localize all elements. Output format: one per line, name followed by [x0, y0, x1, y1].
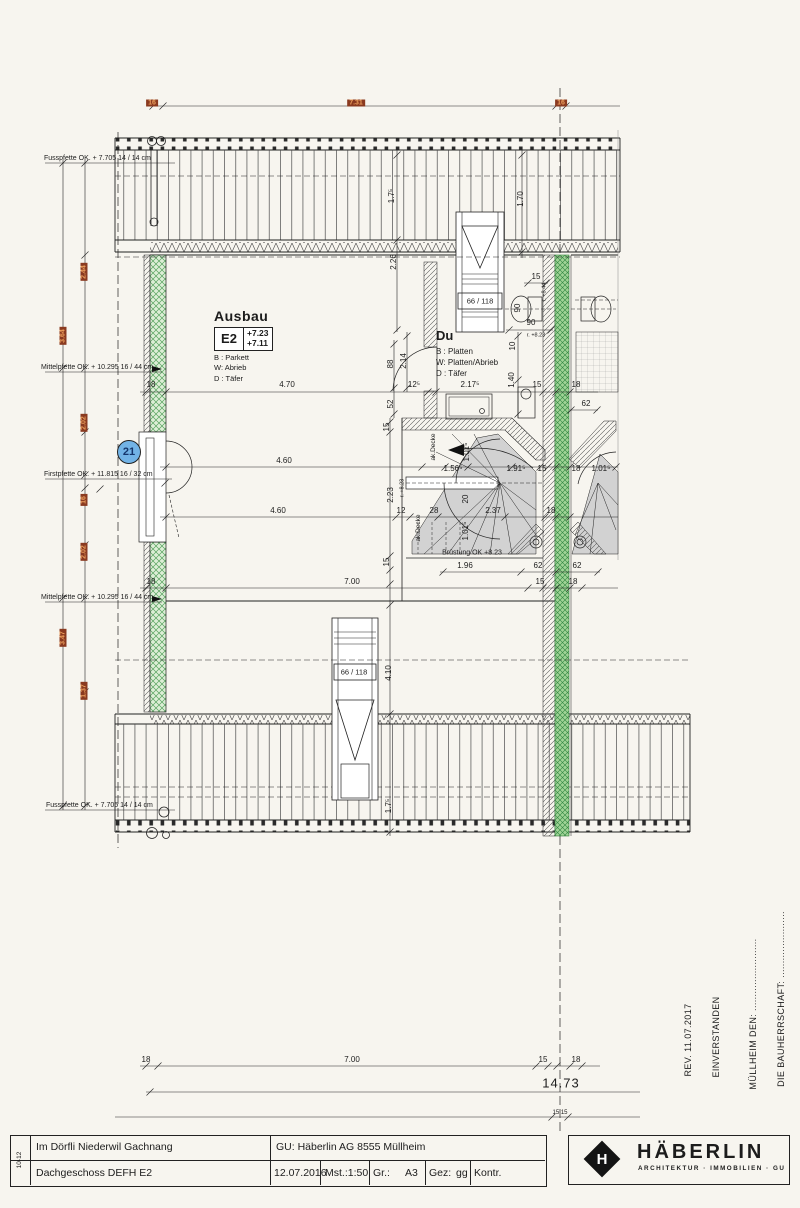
dim-470: 4.70 [279, 381, 295, 389]
label-fusspfette-bottom: Fusspfette OK. + 7.705 14 / 14 cm [46, 802, 153, 809]
unit-levels: +7.23 +7.11 [244, 328, 272, 350]
dim-101-c: 1.01⁵ [462, 522, 470, 541]
floor-plan-drawing [0, 0, 800, 1208]
title-block-divider-2 [270, 1135, 271, 1185]
dim-bottom-18b: 18 [572, 1056, 581, 1064]
dim-101-b: 1.01⁵ [592, 465, 611, 473]
skylight-top-label: 66 / 118 [467, 297, 494, 305]
bath-finish-ceiling: D : Täfer [436, 368, 498, 379]
shower [446, 394, 492, 419]
dim-red-347: 3.47 [60, 629, 67, 647]
facade-window [139, 432, 192, 542]
room-finishes: B : Parkett W: Abrieb D : Täfer [214, 353, 273, 386]
dim-18-du: 18 [572, 381, 581, 389]
dim-18-wall: 18 [547, 507, 556, 515]
dim-bottom-15: 15 [539, 1056, 548, 1064]
dim-226: 2.26 [390, 254, 398, 270]
sheet-index: 10-12 [17, 1152, 24, 1169]
dim-20: 20 [462, 495, 470, 504]
dim-88: 88 [387, 360, 395, 369]
dim-214: 2.14 [400, 353, 408, 369]
bath-title: Du [436, 328, 498, 343]
dim-237: 2.37 [485, 507, 501, 515]
label-mittelpfette-bottom: Mittelpfette OK. + 10.295 16 / 44 cm [41, 594, 153, 601]
dim-red-202b: 2.02 [81, 543, 88, 561]
dim-15-stair: 15 [538, 465, 547, 473]
dim-170: 1.70 [517, 191, 525, 207]
dim-62-b: 62 [573, 562, 582, 570]
dim-red-137: 1.37 [81, 682, 88, 700]
facade-wall-left [139, 255, 192, 712]
roof-band-bottom [115, 714, 690, 832]
dim-156: 1.56⁵ [444, 465, 463, 473]
dim-175-top: 1.7⁵ [388, 189, 396, 203]
dim-175-bottom: 1.7⁵ [385, 799, 393, 813]
drawn-label: Gez: [429, 1167, 451, 1179]
dim-52: 52 [387, 400, 395, 409]
label-fusspfette-top: Fusspfette OK. + 7.705 14 / 14 cm [44, 155, 151, 162]
dim-red-202a: 2.02 [81, 414, 88, 432]
washbasin [518, 387, 535, 418]
dim-460b: 4.60 [270, 507, 286, 515]
dim-wall18-top: 18 [147, 381, 156, 389]
note-akdecke-2: ak.Decke [416, 514, 423, 541]
marker-number: 21 [123, 446, 135, 458]
note-owner: DIE BAUHERRSCHAFT: .....................… [776, 911, 786, 1087]
staircase [402, 418, 545, 601]
title-block-divider-5 [425, 1160, 426, 1185]
dim-1515: 15 15 [552, 1110, 567, 1116]
size-value: A3 [405, 1167, 418, 1179]
label-mittelpfette-top: Mittelpfette OK. + 10.295 16 / 44 cm [41, 364, 153, 371]
dim-460a: 4.60 [276, 457, 292, 465]
dim-410: 4.10 [385, 665, 393, 681]
dim-red-364: 3.64 [60, 327, 67, 345]
dim-15-sky: 15 [532, 273, 541, 281]
position-marker-21: 21 [117, 440, 141, 464]
unit-id: E2 [215, 328, 244, 350]
dim-15-rot-b: 15 [383, 558, 391, 567]
dim-223: 2.23 [387, 487, 395, 503]
dim-125: 12⁵ [408, 381, 420, 389]
dim-bottom-700: 7.00 [344, 1056, 360, 1064]
dim-roof-overhang-right: 16 [555, 100, 567, 107]
dim-15-du: 15 [533, 381, 542, 389]
dim-62-a: 62 [534, 562, 543, 570]
dim-90: 90 [527, 319, 536, 327]
dim-700: 7.00 [344, 578, 360, 586]
title-block-divider-6 [470, 1160, 471, 1185]
bath-finish-wall: W: Platten/Abrieb [436, 357, 498, 368]
dim-bottom-18a: 18 [142, 1056, 151, 1064]
dim-196: 1.96 [457, 562, 473, 570]
dim-12: 12 [397, 507, 406, 515]
room-label-block: Ausbau E2 +7.23 +7.11 B : Parkett W: Abr… [214, 308, 273, 385]
logo-name: HÄBERLIN [637, 1141, 764, 1164]
title-block-row-divider [10, 1160, 545, 1161]
unit-tag: E2 +7.23 +7.11 [214, 327, 273, 351]
contractor: GU: Häberlin AG 8555 Müllheim [276, 1141, 425, 1153]
dim-roof-span: 7.31 [347, 100, 365, 107]
skylight-bottom [332, 618, 378, 800]
bath-finish-floor: B : Platten [436, 346, 498, 357]
dim-15-rot-a: 15 [383, 423, 391, 432]
size-label: Gr.: [373, 1167, 390, 1179]
party-wall [543, 255, 571, 836]
scale: Mst.:1:50 [325, 1167, 368, 1179]
roof-band-top [115, 138, 620, 252]
bath-finishes: B : Platten W: Platten/Abrieb D : Täfer [436, 346, 498, 380]
note-agreed: EINVERSTANDEN [711, 996, 721, 1077]
bath-label-block: Du B : Platten W: Platten/Abrieb D : Täf… [436, 328, 498, 380]
note-place-date: MÜLLHEIM DEN: ......................... [748, 938, 758, 1089]
dim-28: 28 [430, 507, 439, 515]
date: 12.07.2016 [274, 1167, 327, 1179]
note-r823-du: r. +8.23 [527, 333, 546, 339]
skylight-bottom-label: 66 / 118 [341, 668, 368, 676]
skylight-top [456, 212, 504, 332]
dim-101-a: 1.01⁵ [463, 443, 471, 462]
note-r844: r. +8.44 [542, 283, 548, 302]
dim-red-244: 2.44 [81, 263, 88, 281]
sheet-name: Dachgeschoss DEFH E2 [36, 1167, 152, 1179]
dim-red-16: 16 [81, 494, 88, 506]
finish-ceiling: D : Täfer [214, 374, 273, 385]
dim-140: 1.40 [508, 372, 516, 388]
dim-62-du: 62 [582, 400, 591, 408]
neighbor-unit [569, 296, 618, 554]
project-name: Im Dörfli Niederwil Gachnang [36, 1141, 173, 1153]
note-r823-stair: r. +8.23 [400, 479, 406, 498]
finish-floor: B : Parkett [214, 353, 273, 364]
logo-tagline: ARCHITEKTUR · IMMOBILIEN · GU [638, 1165, 785, 1172]
note-revision: REV. 11.07.2017 [683, 1003, 693, 1076]
label-firstpfette: Firstpfette OK. + 11.815 16 / 32 cm [44, 471, 153, 478]
drawn-value: gg [456, 1167, 468, 1179]
checked-label: Kontr. [474, 1167, 501, 1179]
level-bottom: +7.11 [247, 339, 269, 349]
dim-18-stair: 18 [572, 465, 581, 473]
plan-sheet: 16 7.31 16 Fusspfette OK. + 7.705 14 / 1… [0, 0, 800, 1208]
dim-15-c: 15 [536, 578, 545, 586]
dim-90-rot: 90 [514, 304, 522, 313]
dim-10: 10 [509, 342, 517, 351]
dim-wall18-bottom: 18 [147, 578, 156, 586]
room-title: Ausbau [214, 308, 273, 324]
dim-total-1473: 14.73 [542, 1077, 580, 1090]
logo-monogram: H [589, 1146, 615, 1172]
note-akdecke-1: ak.Decke [431, 433, 438, 460]
note-bruestung: Brüstung OK +8.23 [442, 550, 502, 557]
dim-18-c: 18 [569, 578, 578, 586]
title-block-divider-4 [369, 1160, 370, 1185]
dim-roof-overhang-left: 16 [146, 100, 158, 107]
dim-191: 1.91⁵ [507, 465, 526, 473]
dim-2175: 2.17⁵ [461, 381, 480, 389]
finish-wall: W: Abrieb [214, 363, 273, 374]
